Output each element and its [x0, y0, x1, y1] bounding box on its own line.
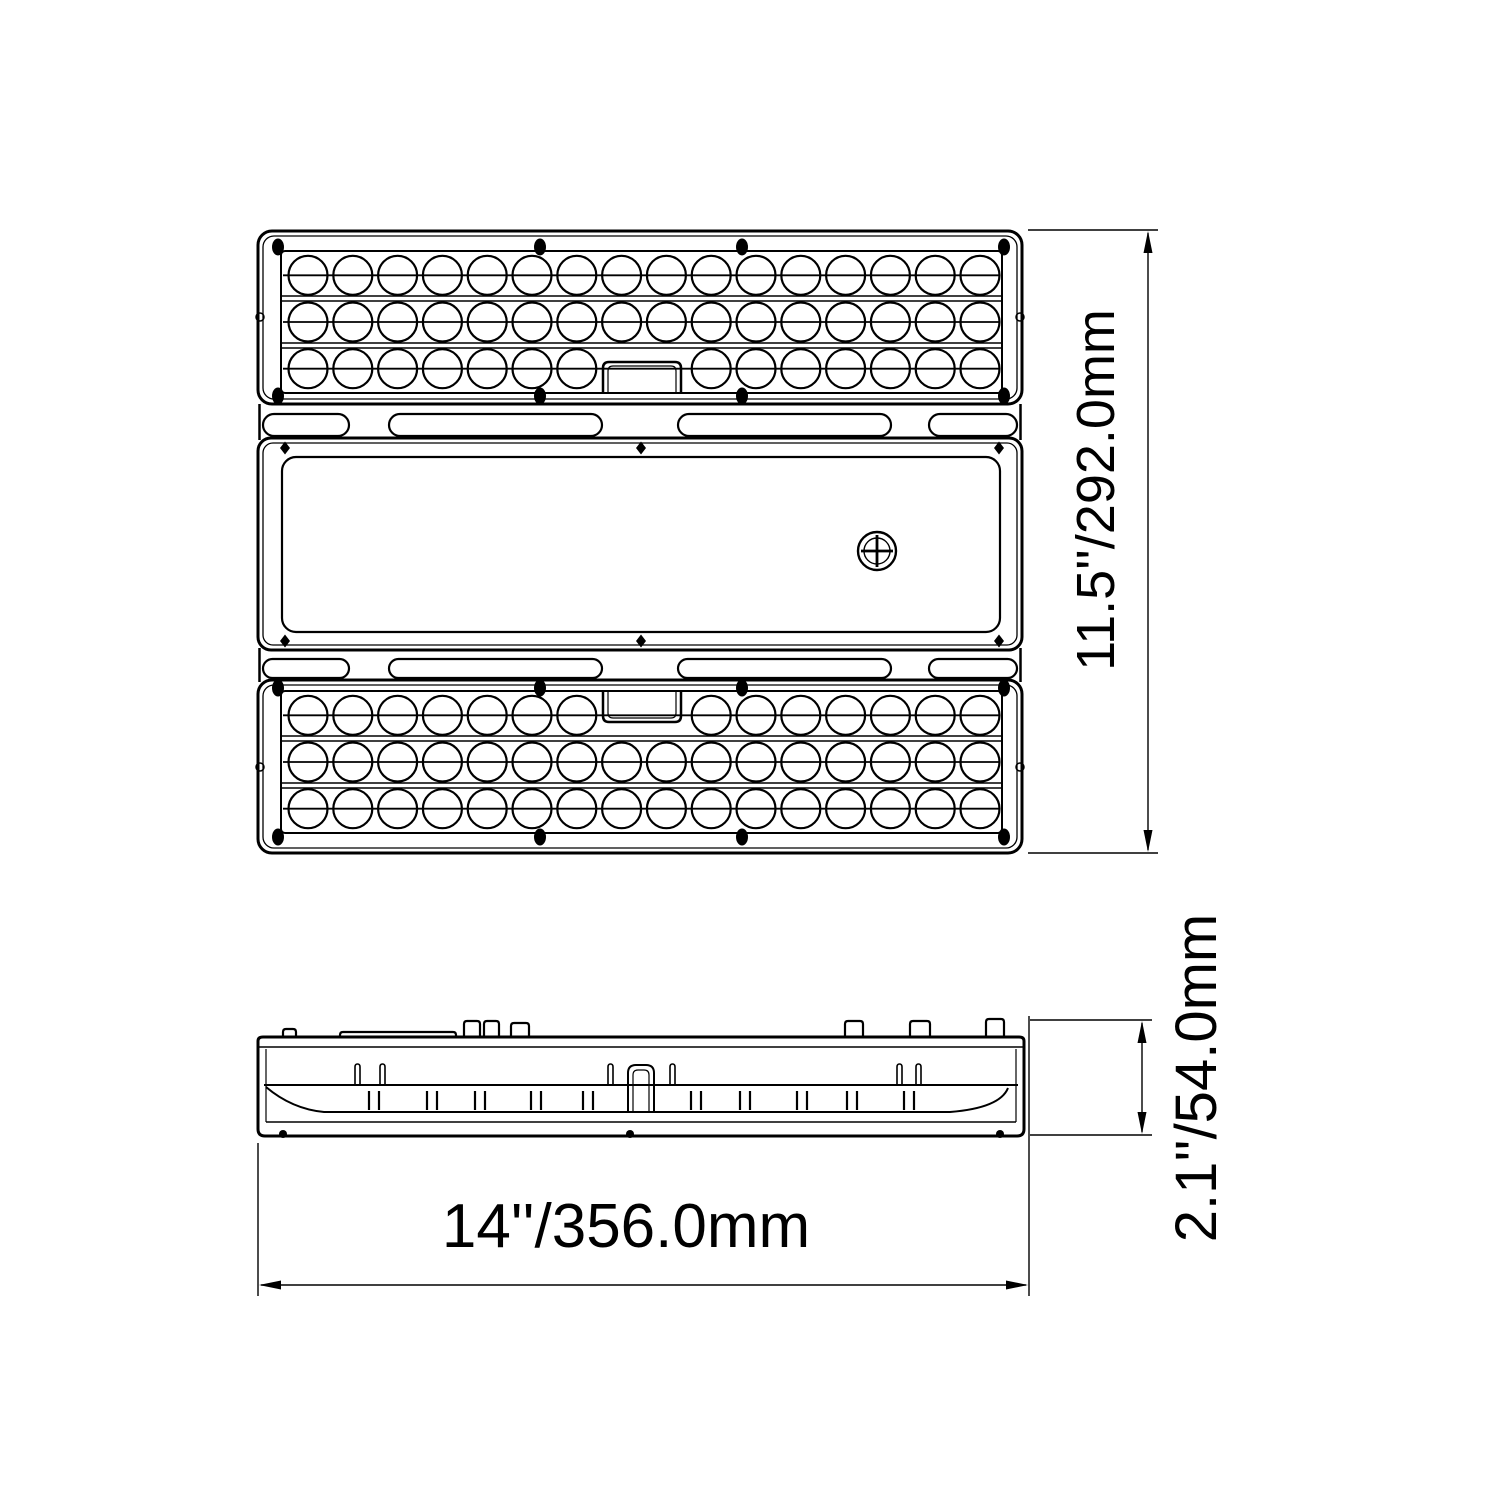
arrow-down-icon — [1138, 1112, 1147, 1134]
lens-grid — [283, 256, 1000, 388]
led-panel-top — [256, 231, 1024, 405]
center-channel — [628, 1065, 654, 1112]
top-bumps — [283, 1019, 1004, 1038]
arrow-up-icon — [1144, 231, 1153, 253]
dimension-depth: 2.1''/54.0mm — [1030, 914, 1229, 1242]
arrow-right-icon — [1006, 1281, 1028, 1290]
center-notch — [603, 362, 681, 393]
fixture-dimensional-drawing: 11.5''/292.0mm 14''/356.0mm 2.1''/54.0mm — [0, 0, 1500, 1500]
center-notch-inner — [608, 366, 676, 393]
dimension-height: 11.5''/292.0mm — [1028, 230, 1158, 853]
lower-shell — [266, 1087, 1008, 1112]
depth-dimension-label: 2.1''/54.0mm — [1164, 914, 1229, 1242]
driver-cover-plate — [282, 457, 1000, 632]
foot-ticks — [369, 1091, 914, 1110]
arrow-left-icon — [259, 1281, 281, 1290]
arrow-down-icon — [1144, 830, 1153, 852]
led-panel-bottom — [256, 680, 1024, 854]
width-dimension-label: 14''/356.0mm — [442, 1192, 810, 1261]
dimensional-drawing-page: 11.5''/292.0mm 14''/356.0mm 2.1''/54.0mm — [0, 0, 1500, 1500]
fins — [355, 1064, 921, 1085]
side-view — [258, 1019, 1024, 1138]
dimension-width: 14''/356.0mm — [258, 1016, 1029, 1296]
driver-inner-frame — [263, 443, 1017, 645]
height-dimension-label: 11.5''/292.0mm — [1066, 309, 1126, 671]
arrow-up-icon — [1138, 1021, 1147, 1043]
phillips-screw-icon — [858, 532, 896, 570]
driver-box — [258, 438, 1022, 650]
top-view — [256, 231, 1024, 853]
driver-outer-frame — [258, 438, 1022, 650]
